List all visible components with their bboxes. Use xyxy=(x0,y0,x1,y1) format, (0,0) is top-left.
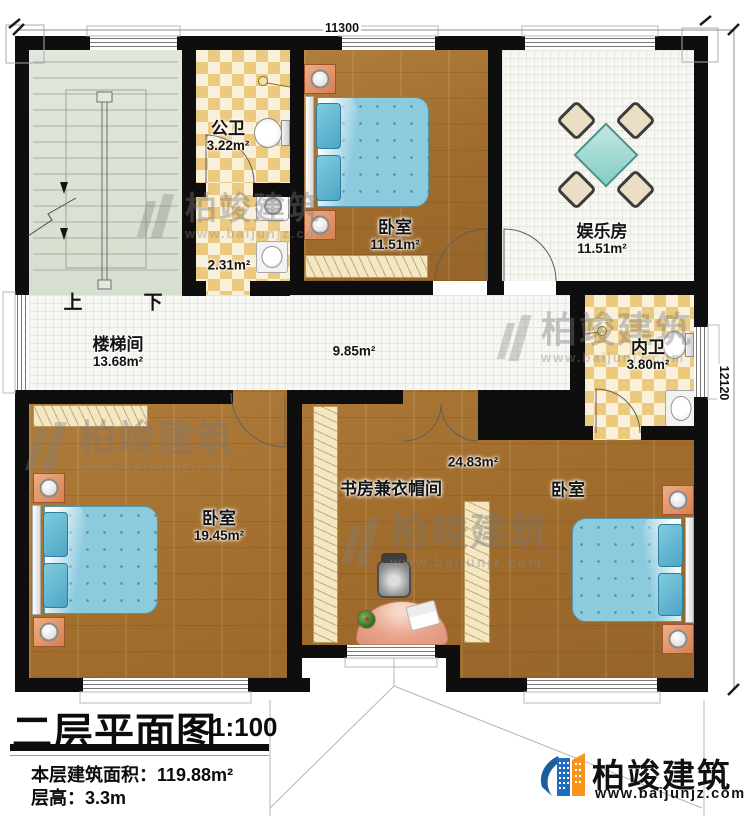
wall xyxy=(248,678,310,692)
wall xyxy=(556,281,708,295)
wall xyxy=(478,390,585,440)
floor-stairwell xyxy=(29,50,182,308)
window xyxy=(83,678,248,692)
wall xyxy=(182,50,196,296)
wall xyxy=(182,281,206,296)
wall xyxy=(253,183,290,197)
wall xyxy=(15,36,90,50)
wall xyxy=(15,390,29,678)
wall xyxy=(196,183,206,197)
exterior-notch xyxy=(302,658,446,678)
bed-icon xyxy=(32,505,158,615)
window xyxy=(525,36,655,50)
wall xyxy=(287,390,403,404)
room-label-bedroom-top: 卧室 11.51m² xyxy=(370,218,420,252)
wall xyxy=(288,645,347,658)
bed-icon xyxy=(572,517,694,623)
floor-plan-canvas: 柏竣建筑 www.baijunjz.com 柏竣建筑 www.baijunjz.… xyxy=(0,0,750,817)
brand-url: www.baijunjz.com xyxy=(595,786,746,802)
wardrobe-icon xyxy=(313,406,338,643)
nightstand-icon xyxy=(662,624,694,654)
room-label-stairwell: 楼梯间 13.68m² xyxy=(93,335,144,369)
wall xyxy=(290,281,433,295)
wall xyxy=(694,397,708,678)
nightstand-icon xyxy=(304,210,336,240)
wall xyxy=(435,36,525,50)
wall xyxy=(290,50,304,295)
nightstand-icon xyxy=(304,64,336,94)
room-label-bedroom-right: 卧室 xyxy=(551,480,585,499)
room-label-ensuite-bath: 内卫 3.80m² xyxy=(627,338,670,372)
wall xyxy=(657,678,708,692)
wall xyxy=(655,36,708,50)
wall xyxy=(177,36,342,50)
room-label-entertainment: 娱乐房 11.51m² xyxy=(577,222,628,256)
wardrobe-icon xyxy=(305,255,428,278)
wall xyxy=(641,426,694,440)
toilet-icon xyxy=(254,118,290,148)
desk-chair-icon xyxy=(377,560,411,598)
wall xyxy=(15,50,29,295)
window xyxy=(90,36,177,50)
stair-down-label: 下 xyxy=(143,288,162,315)
vanity-sink-icon xyxy=(665,390,697,427)
dimension-top: 11300 xyxy=(323,21,361,35)
room-area-study-cloakroom: 24.83m² xyxy=(448,454,498,469)
window xyxy=(15,295,29,390)
window xyxy=(347,645,435,658)
room-label-study-cloakroom: 书房兼衣帽间 xyxy=(340,479,442,498)
wall xyxy=(488,50,502,281)
wardrobe-icon xyxy=(464,501,490,643)
floor-height-label: 层高：3.3m xyxy=(31,784,126,810)
stair-up-label: 上 xyxy=(63,288,82,315)
wall xyxy=(15,390,233,404)
wall xyxy=(585,426,593,440)
room-label-hallway: 9.85m² xyxy=(333,343,376,358)
window xyxy=(527,678,657,692)
plant-icon xyxy=(358,611,375,628)
title-underline-thin xyxy=(10,755,269,756)
floor-public-bath xyxy=(196,50,290,183)
wall xyxy=(487,281,504,295)
scale-label: 1:100 xyxy=(211,712,278,743)
bed-icon xyxy=(305,96,429,208)
wall xyxy=(250,281,290,296)
room-label-bedroom-left: 卧室 19.45m² xyxy=(194,509,244,543)
nightstand-icon xyxy=(33,473,65,503)
title-underline xyxy=(10,744,269,751)
dimension-right: 12120 xyxy=(717,364,731,403)
wall xyxy=(287,404,302,678)
nightstand-icon xyxy=(33,617,65,647)
room-label-public-bath: 公卫 3.22m² xyxy=(207,119,250,153)
room-label-bath-anteroom: 2.31m² xyxy=(208,257,251,272)
wall xyxy=(446,678,527,692)
nightstand-icon xyxy=(662,485,694,515)
wall xyxy=(570,295,585,390)
wardrobe-icon xyxy=(33,405,148,427)
brand-logo-icon xyxy=(537,751,589,799)
wall xyxy=(15,678,83,692)
washbasin-icon xyxy=(256,241,288,273)
window xyxy=(694,327,708,397)
window xyxy=(342,36,435,50)
